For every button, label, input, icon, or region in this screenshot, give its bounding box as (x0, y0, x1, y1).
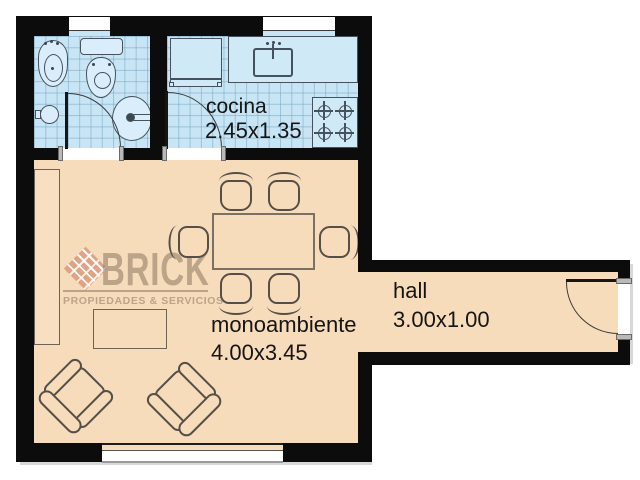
studio-window (102, 450, 283, 463)
toilet-tank-icon (80, 38, 123, 55)
kitchen-window-sill (263, 31, 335, 36)
wall-right-upper (358, 16, 372, 272)
chair (220, 180, 252, 211)
faucet-dot (266, 42, 269, 45)
floor-drain-icon (40, 105, 59, 124)
door-jamb (221, 146, 226, 161)
toilet-seat-icon (94, 72, 111, 89)
fridge-door-line (171, 78, 221, 80)
coffee-table (93, 309, 167, 349)
basin-tap-icon (126, 113, 135, 122)
bidet-dot (56, 42, 59, 45)
door-jamb (162, 146, 167, 161)
wall-mid-b (121, 148, 167, 160)
wall-left (16, 16, 34, 462)
wall-hall-bottom (358, 352, 630, 365)
kitchen-window (263, 17, 335, 31)
chair (319, 226, 350, 258)
studio-dims: 4.00x3.45 (211, 341, 308, 365)
burner-icon (339, 105, 352, 118)
door-jamb (119, 146, 124, 161)
door-jamb (616, 334, 632, 340)
burner-icon (339, 127, 352, 140)
chair (220, 273, 252, 304)
kitchen-counter (228, 36, 358, 83)
chair (268, 273, 300, 304)
dining-table (212, 213, 315, 270)
wardrobe (34, 169, 60, 345)
wall-right-lower (358, 352, 372, 462)
hall-dims: 3.00x1.00 (393, 308, 490, 332)
door-jamb (58, 146, 63, 161)
fridge-foot (169, 82, 174, 87)
door-jamb (616, 278, 632, 284)
bathroom-window (69, 17, 110, 31)
bidet-dot (50, 40, 53, 43)
burner-icon (318, 105, 331, 118)
faucet-dot (278, 42, 281, 45)
floor-plan: BRICK PROPIEDADES & SERVICIOS (0, 0, 640, 480)
faucet-stem (272, 44, 274, 59)
kitchen-label: cocina (206, 95, 267, 118)
bathroom-window-sill (69, 31, 110, 36)
studio-label: monoambiente (211, 313, 357, 337)
bidet-drain-dot (51, 67, 54, 70)
wall-hall-top (358, 260, 630, 272)
toilet-bolt-dot (108, 63, 111, 66)
hall-label: hall (393, 279, 427, 303)
fridge-foot (217, 82, 222, 87)
stove-icon (312, 97, 358, 148)
watermark-rule (63, 290, 208, 292)
watermark-tagline: PROPIEDADES & SERVICIOS (63, 295, 224, 307)
bidet-dot (44, 42, 47, 45)
entrance-opening (618, 284, 630, 334)
chair (268, 180, 300, 211)
wall-mid-a (16, 148, 62, 160)
burner-icon (318, 127, 331, 140)
kitchen-dims: 2.45x1.35 (205, 119, 302, 143)
chair (178, 226, 209, 258)
wall-mid-c (223, 148, 372, 160)
toilet-bolt-dot (92, 63, 95, 66)
